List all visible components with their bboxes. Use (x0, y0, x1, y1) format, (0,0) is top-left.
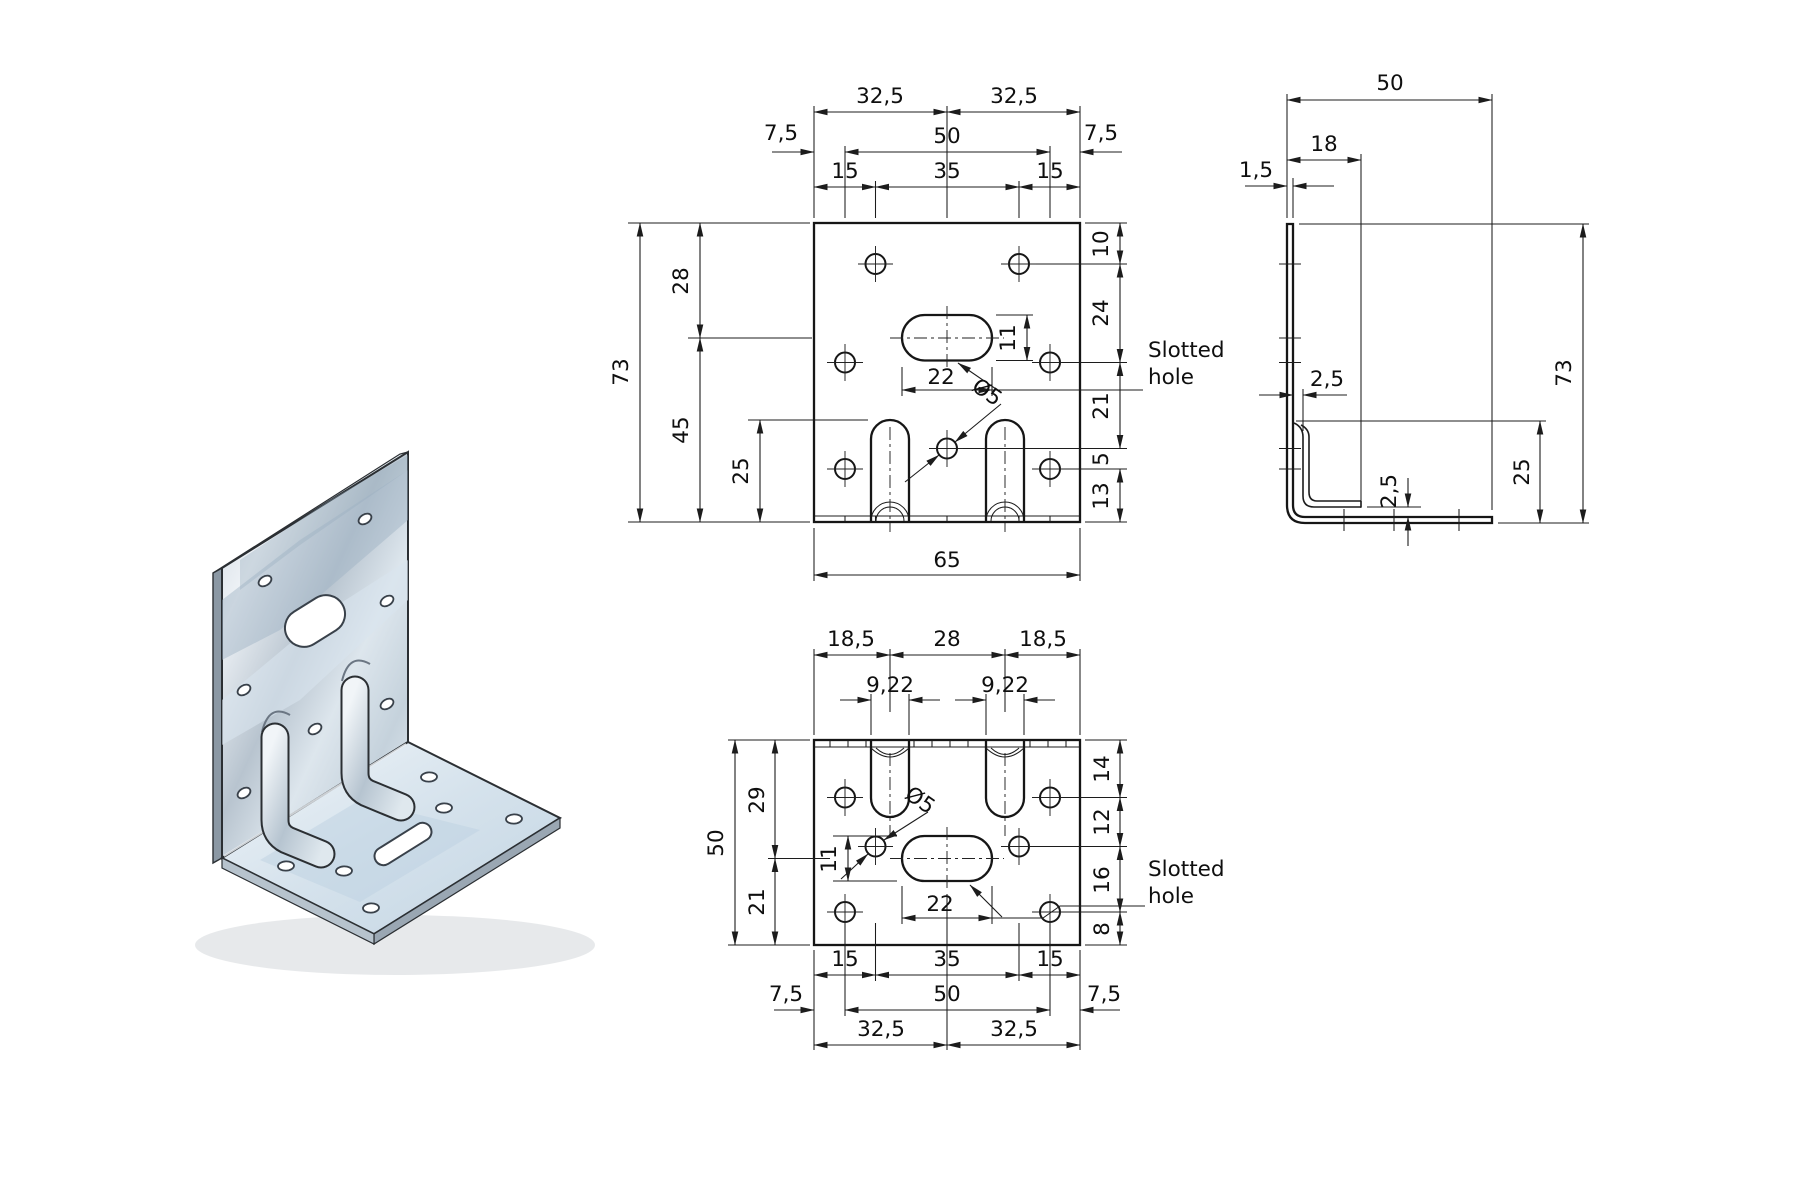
dim-bottom-185l: 18,5 (827, 627, 875, 652)
side-view: 50 18 1,5 2,5 2,5 25 73 (1239, 71, 1589, 546)
dim-bottom-15r: 15 (1036, 947, 1063, 972)
bottom-view: 18,5 28 18,5 9,22 9,22 50 29 21 11 Ø5 22… (704, 627, 1225, 1050)
dim-bottom-15l: 15 (831, 947, 858, 972)
dim-side-73: 73 (1552, 359, 1577, 386)
dim-bottom-28: 28 (933, 627, 960, 652)
dim-front-25: 25 (729, 457, 754, 484)
dim-front-13: 13 (1089, 482, 1114, 509)
dim-front-50: 50 (933, 124, 960, 149)
dim-front-15r: 15 (1036, 159, 1063, 184)
side-tab-profile (1294, 423, 1361, 507)
dim-front-15l: 15 (831, 159, 858, 184)
front-slotted-hole-label-1: Slotted (1148, 338, 1225, 363)
dim-front-65: 65 (933, 548, 960, 573)
bottom-slotted-hole-label-2: hole (1148, 884, 1194, 909)
side-hole-centerline-ticks (1279, 264, 1459, 531)
plate-left-edge (213, 568, 222, 863)
dim-bottom-50b: 50 (933, 982, 960, 1007)
dim-bottom-75l: 7,5 (769, 982, 803, 1007)
dim-front-10: 10 (1089, 230, 1114, 257)
dim-bottom-922r: 9,22 (981, 673, 1029, 698)
dim-side-25-bottom: 2,5 (1377, 474, 1402, 508)
dim-front-73: 73 (609, 358, 634, 385)
front-slotted-hole-label-2: hole (1148, 365, 1194, 390)
dim-side-50: 50 (1376, 71, 1403, 96)
dim-front-45: 45 (669, 416, 694, 443)
dim-bottom-21: 21 (745, 888, 770, 915)
dim-bottom-14: 14 (1090, 755, 1115, 782)
dim-front-24: 24 (1089, 299, 1114, 326)
dim-bottom-185r: 18,5 (1019, 627, 1067, 652)
dim-side-18: 18 (1310, 132, 1337, 157)
dim-bottom-22: 22 (926, 892, 953, 917)
dim-bottom-35: 35 (933, 947, 960, 972)
dim-bottom-11: 11 (817, 845, 842, 872)
dim-bottom-50l: 50 (704, 829, 729, 856)
dim-side-15: 1,5 (1239, 158, 1273, 183)
front-view: 32,5 32,5 7,5 50 7,5 15 35 15 73 28 45 2… (609, 84, 1225, 581)
dim-side-25-leg: 25 (1510, 458, 1535, 485)
dim-front-325r: 32,5 (990, 84, 1038, 109)
dim-front-11: 11 (996, 324, 1021, 351)
angle-bracket-drawing: 32,5 32,5 7,5 50 7,5 15 35 15 73 28 45 2… (0, 0, 1800, 1200)
dim-bottom-75r: 7,5 (1087, 982, 1121, 1007)
dim-bottom-29: 29 (745, 786, 770, 813)
side-extension-lines (1287, 94, 1589, 523)
dim-front-28: 28 (669, 267, 694, 294)
dim-front-325l: 32,5 (856, 84, 904, 109)
dim-bottom-922l: 9,22 (866, 673, 914, 698)
dim-front-21: 21 (1089, 392, 1114, 419)
dim-front-22: 22 (927, 365, 954, 390)
dim-bottom-16: 16 (1090, 866, 1115, 893)
dim-side-25-offset: 2,5 (1310, 367, 1344, 392)
dim-front-5: 5 (1089, 452, 1114, 466)
isometric-view (195, 452, 595, 975)
dim-front-35: 35 (933, 159, 960, 184)
dim-front-75l: 7,5 (764, 121, 798, 146)
dim-bottom-8: 8 (1090, 922, 1115, 936)
technical-drawing-page: 32,5 32,5 7,5 50 7,5 15 35 15 73 28 45 2… (0, 0, 1800, 1200)
dim-bottom-12: 12 (1090, 808, 1115, 835)
dim-bottom-325r: 32,5 (990, 1017, 1038, 1042)
dim-bottom-325l: 32,5 (857, 1017, 905, 1042)
dim-front-75r: 7,5 (1084, 121, 1118, 146)
bottom-slotted-hole-label-1: Slotted (1148, 857, 1225, 882)
